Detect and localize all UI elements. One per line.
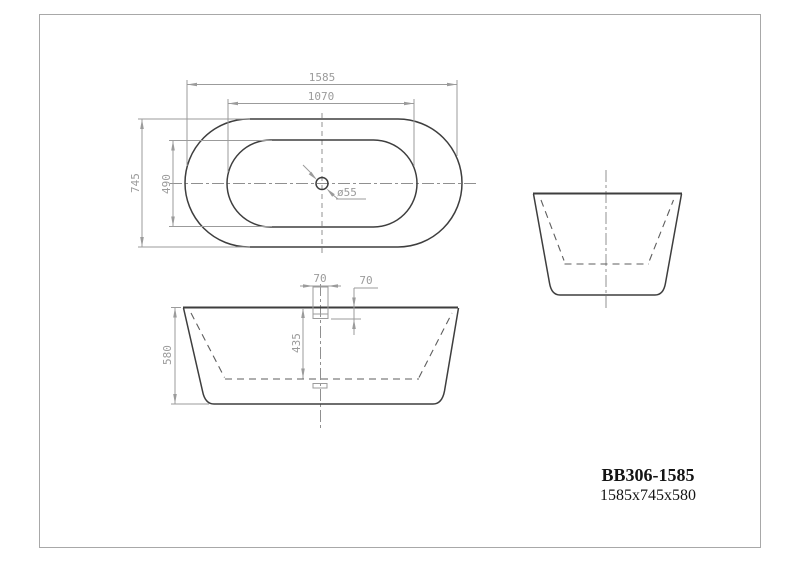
- dim-label-drain-diameter: ø55: [337, 186, 357, 199]
- dim-label-length: 1585: [309, 71, 336, 84]
- arrowhead: [173, 308, 177, 318]
- leader-arrowhead: [309, 172, 317, 180]
- top-view-dimensions: 1585 1070 745 490: [129, 71, 457, 247]
- hidden-interior-line: [419, 313, 452, 378]
- arrowhead: [171, 141, 175, 151]
- arrowhead: [171, 217, 175, 227]
- dim-label-inner-depth: 435: [290, 333, 303, 353]
- arrowhead: [328, 284, 338, 288]
- arrowhead: [447, 83, 457, 87]
- dim-label-overflow-width: 70: [313, 272, 326, 285]
- dim-label-rim-width: 490: [160, 174, 173, 194]
- title-block: BB306-1585 1585x745x580: [600, 465, 696, 504]
- dim-label-height: 580: [161, 345, 174, 365]
- front-view: 70 70 435 580: [161, 272, 459, 431]
- arrowhead: [404, 102, 414, 106]
- top-view: 1585 1070 745 490: [129, 71, 477, 257]
- dim-label-width: 745: [129, 173, 142, 193]
- arrowhead: [352, 319, 356, 329]
- arrowhead: [301, 369, 305, 379]
- arrowhead: [140, 119, 144, 129]
- dim-label-rim-length: 1070: [308, 90, 335, 103]
- hidden-interior-line: [191, 313, 225, 378]
- arrowhead: [228, 102, 238, 106]
- drawing-page: 1585 1070 745 490: [0, 0, 800, 565]
- arrowhead: [303, 284, 313, 288]
- hidden-interior-line: [650, 200, 674, 261]
- technical-drawing: 1585 1070 745 490: [0, 0, 800, 565]
- arrowhead: [173, 394, 177, 404]
- front-view-dimensions: 70 70 435 580: [161, 272, 378, 404]
- dim-label-overflow-drop: 70: [359, 274, 372, 287]
- arrowhead: [352, 298, 356, 308]
- leader-line: [303, 165, 311, 173]
- arrowhead: [140, 237, 144, 247]
- arrowhead: [187, 83, 197, 87]
- overall-dimensions: 1585x745x580: [600, 487, 696, 504]
- model-number: BB306-1585: [601, 465, 694, 485]
- side-view: [533, 170, 682, 309]
- side-body-outline: [534, 194, 682, 295]
- arrowhead: [301, 308, 305, 318]
